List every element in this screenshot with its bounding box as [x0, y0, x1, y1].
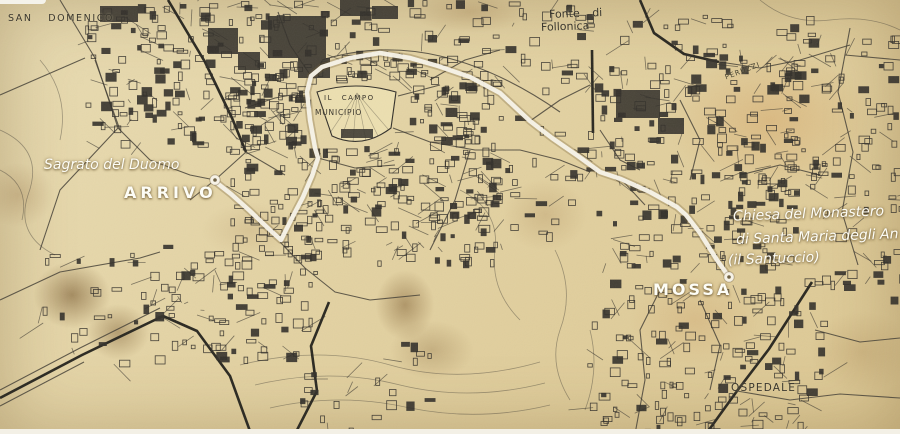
map-artwork — [0, 0, 900, 434]
scan-edge-bottom — [0, 429, 900, 434]
map-canvas: SAN DOMENICO Fonte di Follonica PERUZZI … — [0, 0, 900, 434]
paper-grain — [0, 0, 900, 434]
scan-edge-topleft — [0, 0, 46, 4]
